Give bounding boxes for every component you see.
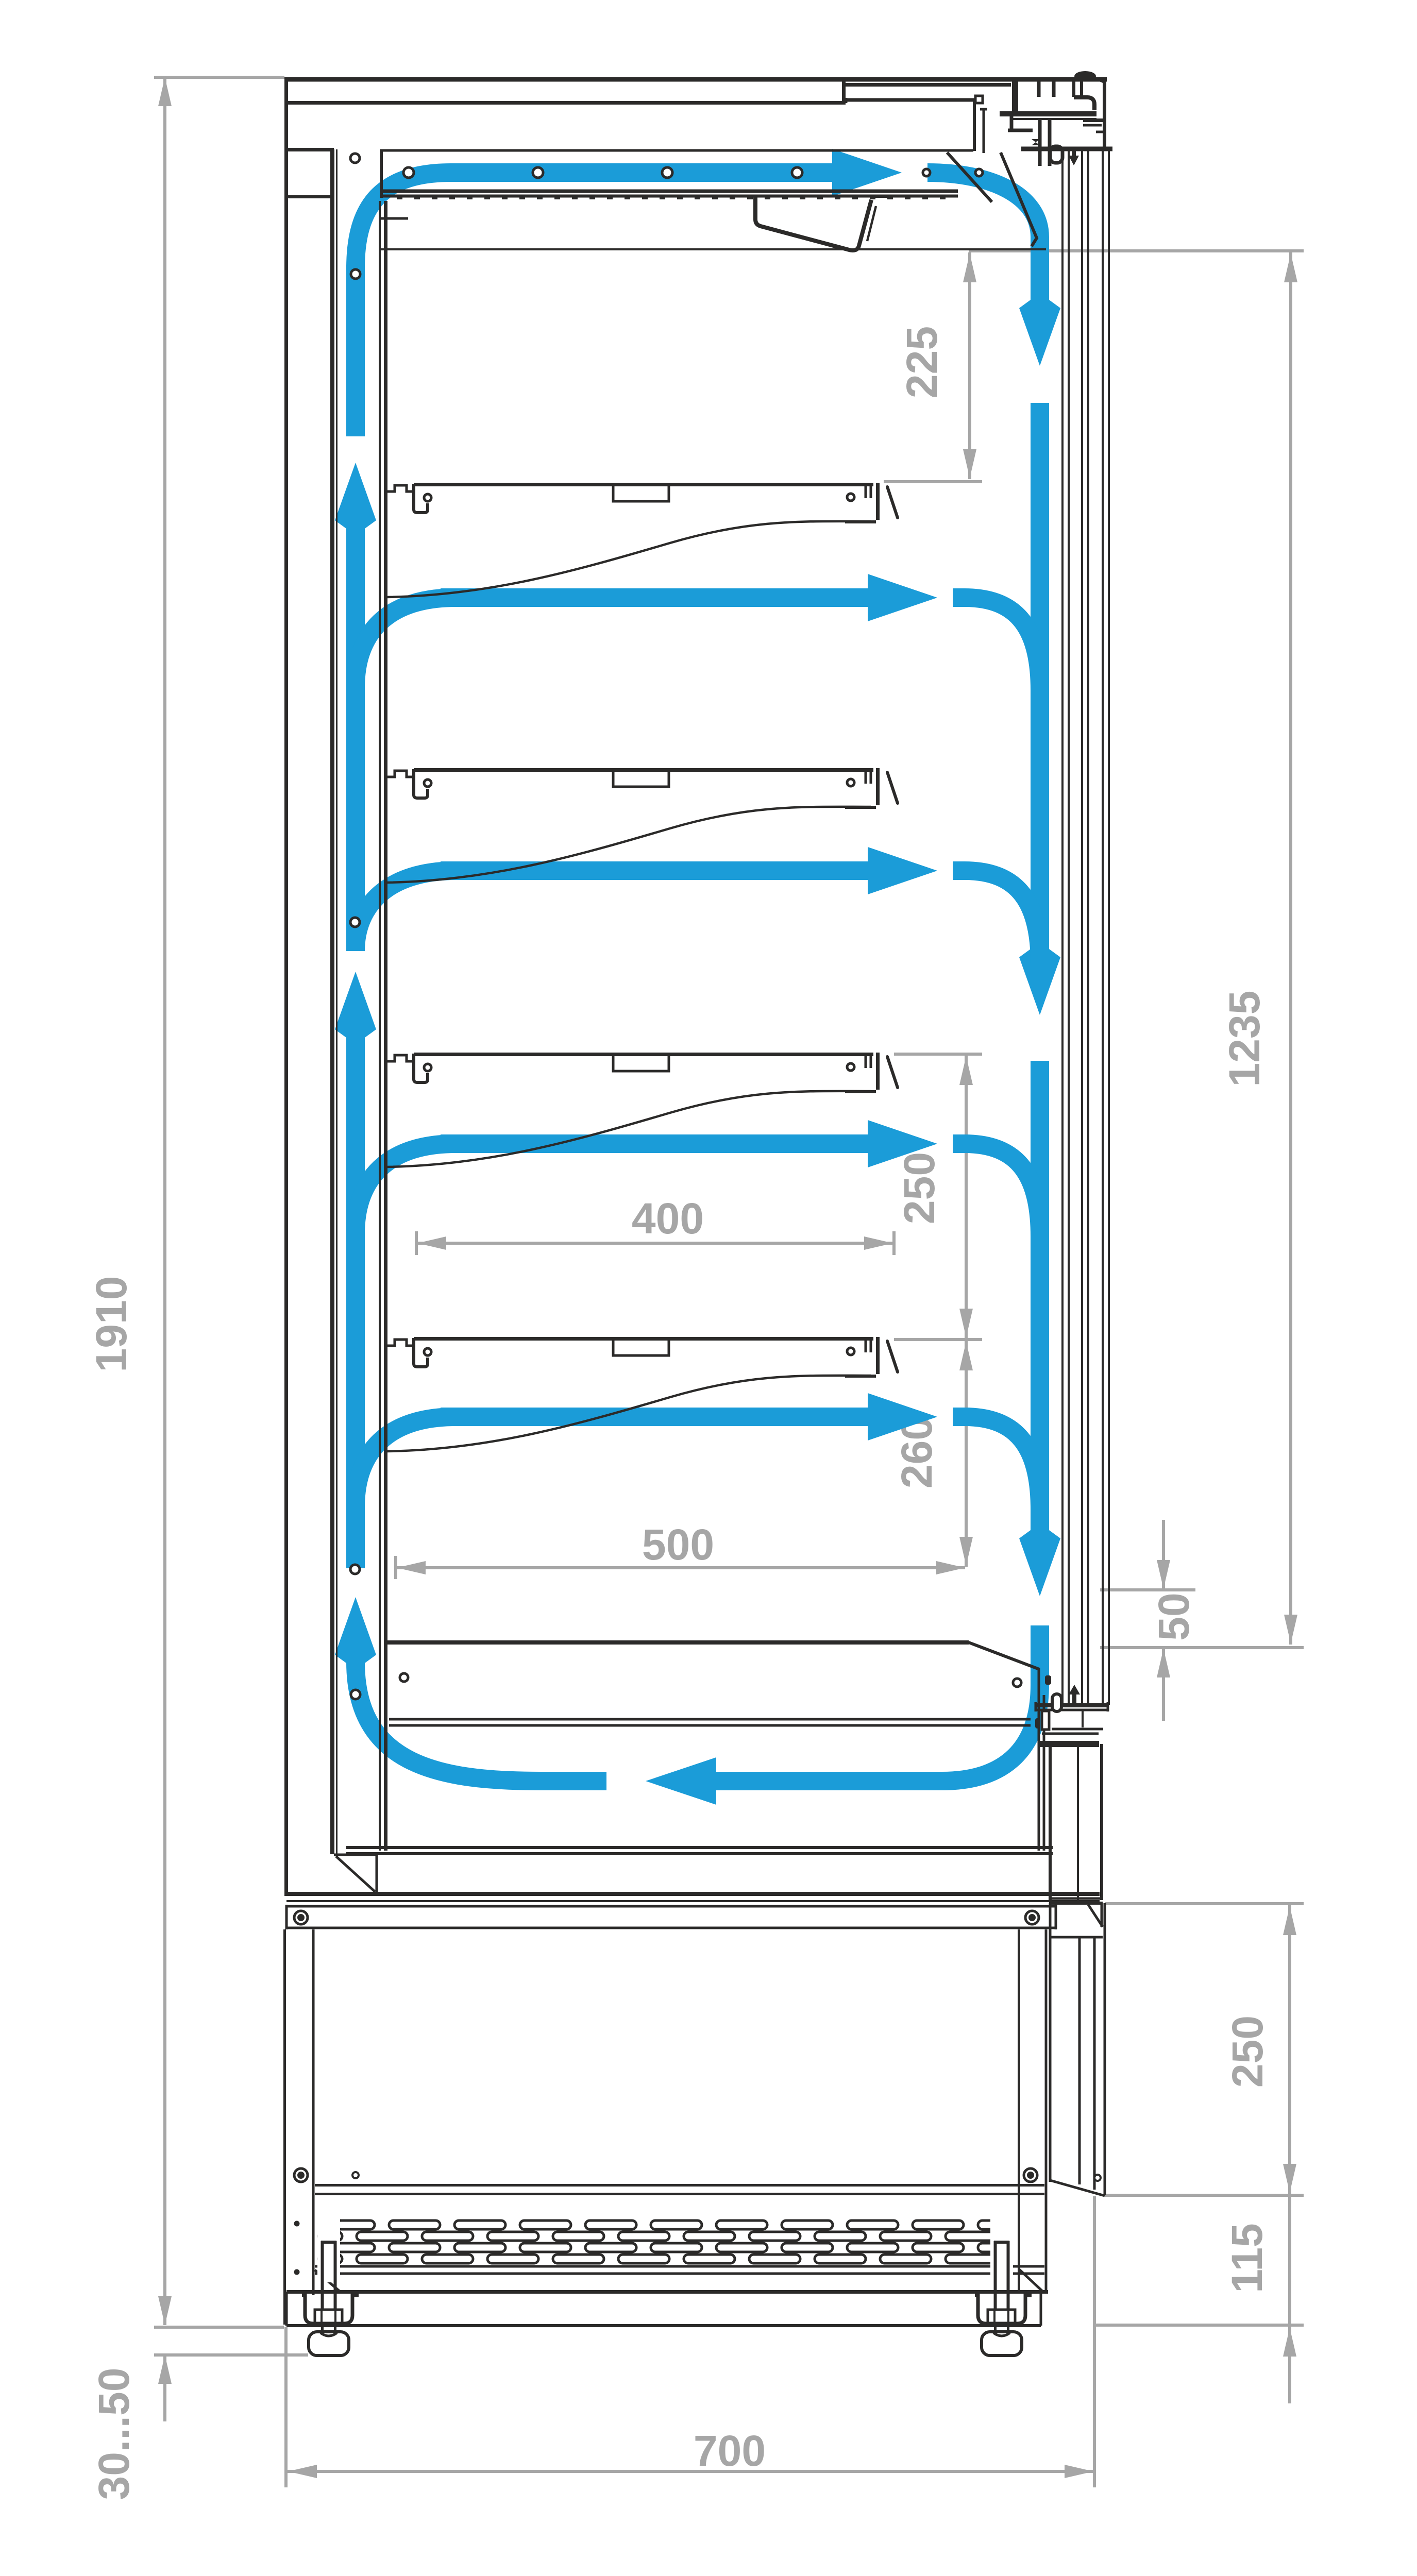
svg-text:700: 700 [694,2427,766,2475]
svg-text:225: 225 [898,326,946,398]
svg-text:250: 250 [895,1152,943,1224]
svg-text:50: 50 [1150,1592,1198,1640]
svg-text:30...50: 30...50 [90,2368,138,2500]
svg-text:115: 115 [1223,2223,1271,2293]
svg-text:400: 400 [632,1194,704,1243]
svg-text:500: 500 [642,1520,714,1569]
svg-text:1910: 1910 [87,1276,136,1372]
svg-text:1235: 1235 [1220,991,1269,1087]
svg-text:250: 250 [1223,2015,1272,2088]
